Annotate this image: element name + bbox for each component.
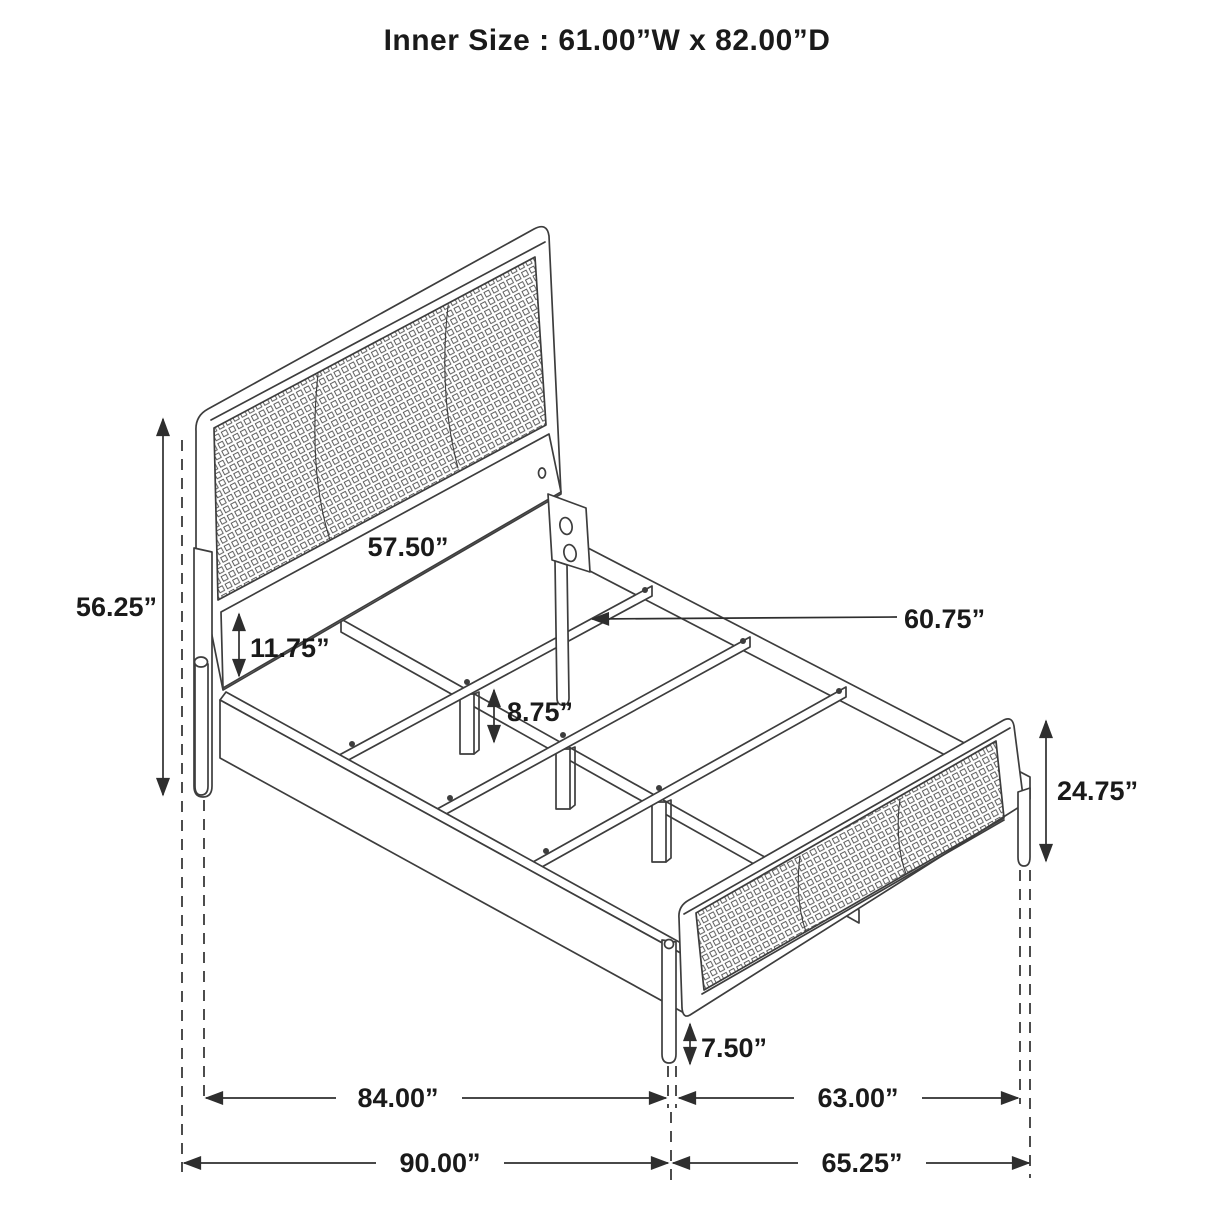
- label-footboard-leg-height: 7.50”: [701, 1033, 767, 1063]
- label-headboard-rail-width: 57.50”: [367, 532, 448, 562]
- label-headboard-height: 56.25”: [76, 592, 157, 622]
- footboard-leg-peg: [665, 940, 674, 949]
- label-footboard-inner-width: 63.00”: [817, 1083, 898, 1113]
- footboard-mesh: [696, 741, 1004, 990]
- label-side-rail-height: 11.75”: [250, 633, 330, 663]
- dim-slat-length-leader: [592, 617, 897, 619]
- bed-dimension-diagram: Inner Size : 61.00”W x 82.00”D: [0, 0, 1214, 1214]
- front-side-rail: [220, 692, 690, 1014]
- footboard: [662, 719, 1030, 1063]
- label-overall-length: 90.00”: [399, 1148, 480, 1178]
- headboard-left-leg-post: [195, 662, 208, 795]
- label-inner-length: 84.00”: [357, 1083, 438, 1113]
- label-slat-leg-height: 8.75”: [507, 697, 573, 727]
- footboard-right-leg: [1018, 788, 1030, 866]
- bed-diagram-svg: 56.25” 11.75” 57.50” 8.75” 60.75” 24.75”…: [0, 0, 1214, 1214]
- headboard-leg-peg: [195, 657, 208, 667]
- label-slat-length: 60.75”: [904, 604, 985, 634]
- label-footboard-height: 24.75”: [1057, 776, 1138, 806]
- label-overall-width: 65.25”: [821, 1148, 902, 1178]
- footboard-left-leg: [662, 940, 676, 1063]
- headboard-right-leg: [555, 561, 569, 705]
